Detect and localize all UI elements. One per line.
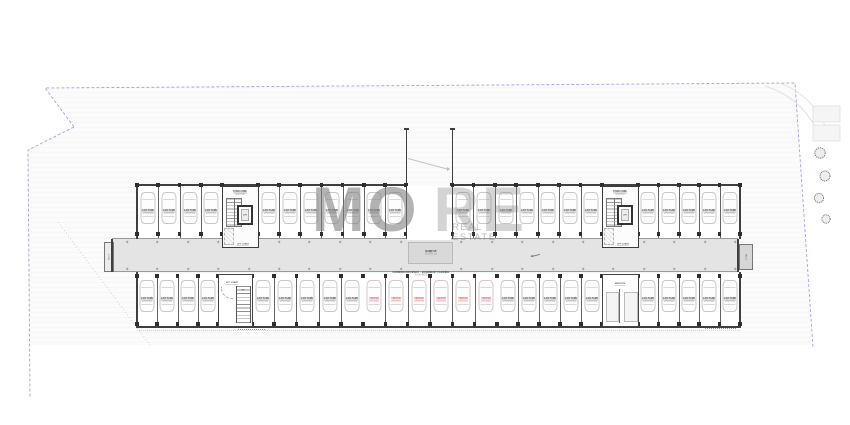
stall-label-dim: 2.5 X 5.0 bbox=[642, 212, 654, 215]
car-windshield-line bbox=[326, 199, 337, 200]
parking-stall: CAR PARK2.5 X 5.0 bbox=[638, 186, 659, 238]
car-glyph bbox=[200, 280, 215, 312]
car-glyph bbox=[641, 280, 656, 312]
parking-stall: CAR PARK2.5 X 5.0 bbox=[198, 275, 218, 326]
parking-stall: CAR PARK2.5 X 5.0 bbox=[495, 186, 517, 238]
column-block bbox=[362, 183, 366, 187]
parking-stall: CAR PARK2.5 X 5.0 bbox=[343, 186, 365, 238]
car-windshield-line bbox=[643, 287, 654, 288]
car-glyph bbox=[161, 192, 176, 224]
car-rear-line bbox=[162, 304, 173, 305]
car-glyph bbox=[702, 280, 717, 312]
car-rear-line bbox=[523, 304, 534, 305]
car-glyph bbox=[477, 192, 492, 224]
column-block bbox=[677, 183, 681, 187]
lift-label: LIFT bbox=[623, 213, 627, 215]
stall-label: CAR PARK2.5 X 5.0 bbox=[724, 209, 736, 215]
stair-center-line bbox=[614, 199, 615, 226]
stall-label-dim: 2.5 X 5.0 bbox=[457, 212, 469, 215]
car-rear-line bbox=[302, 304, 313, 305]
lift-lobby-label: LIFT LOBBY bbox=[226, 282, 238, 285]
car-glyph bbox=[542, 280, 557, 312]
column-block bbox=[514, 232, 518, 236]
stall-label: CAR PARK2.5 X 5.0 bbox=[457, 209, 469, 215]
car-rear-line bbox=[305, 216, 316, 217]
stall-label: CAR PARK2.5 X 5.0 bbox=[564, 297, 576, 303]
car-rear-line bbox=[683, 216, 694, 217]
car-glyph bbox=[681, 192, 696, 224]
column-block bbox=[493, 232, 497, 236]
car-glyph bbox=[498, 192, 513, 224]
car-windshield-line bbox=[521, 199, 532, 200]
car-windshield-line bbox=[565, 287, 576, 288]
column-block bbox=[384, 322, 388, 326]
car-windshield-line bbox=[643, 199, 654, 200]
stair-core-label: STAIR CORE3.4 X 5.6 bbox=[613, 190, 627, 195]
car-windshield-line bbox=[202, 287, 213, 288]
stall-label: CAR PARK2.5 X 5.0 bbox=[522, 297, 534, 303]
car-rear-line bbox=[182, 304, 193, 305]
dimension-annotation bbox=[238, 329, 265, 330]
car-rear-line bbox=[479, 216, 490, 217]
car-rear-line bbox=[348, 216, 359, 217]
column-block bbox=[406, 322, 410, 326]
column-block bbox=[451, 274, 455, 278]
column-block bbox=[135, 183, 139, 187]
stall-label: CAR PARK2.5 X 5.0 bbox=[305, 209, 317, 215]
column-block bbox=[495, 274, 499, 278]
column-block bbox=[697, 232, 701, 236]
car-rear-line bbox=[263, 216, 274, 217]
stall-label-dim: 2.5 X 5.0 bbox=[501, 300, 513, 303]
car-rear-line bbox=[500, 216, 511, 217]
car-windshield-line bbox=[391, 287, 402, 288]
lobby-hatch bbox=[224, 228, 235, 245]
car-windshield-line bbox=[500, 199, 511, 200]
car-glyph bbox=[367, 192, 382, 224]
column-block bbox=[657, 322, 661, 326]
car-rear-line bbox=[413, 304, 424, 305]
car-glyph bbox=[722, 280, 737, 312]
car-glyph bbox=[562, 192, 577, 224]
stall-label-dim: 2.5 X 5.0 bbox=[346, 300, 358, 303]
car-windshield-line bbox=[142, 287, 153, 288]
column-block bbox=[155, 322, 159, 326]
car-rear-line bbox=[724, 216, 735, 217]
stall-label: CAR PARK2.5 X 5.0 bbox=[389, 209, 401, 215]
stall-label-dim: 2.5 X 5.0 bbox=[662, 212, 674, 215]
stall-label-dim: 2.5 X 5.0 bbox=[347, 212, 359, 215]
stall-label: CAR PARK2.5 X 5.0 bbox=[257, 297, 269, 303]
column-block bbox=[295, 322, 299, 326]
car-windshield-line bbox=[502, 287, 513, 288]
column-block bbox=[135, 274, 139, 278]
car-windshield-line bbox=[683, 199, 694, 200]
car-rear-line bbox=[436, 304, 447, 305]
stall-label: CAR PARK2.5 X 5.0 bbox=[499, 209, 511, 215]
column-block bbox=[384, 274, 388, 278]
floorplan-canvas: DUCTDUCTCAR PARK2.5 X 5.0CAR PARK2.5 X 5… bbox=[0, 0, 850, 425]
parking-stall: CAR PARK2.5 X 5.0 bbox=[157, 275, 178, 326]
column-block bbox=[196, 322, 200, 326]
stall-label-dim: 2.5 X 5.0 bbox=[662, 300, 674, 303]
column-block bbox=[383, 232, 387, 236]
parking-stall: CAR PARK2.5 X 5.0 bbox=[319, 275, 342, 326]
parking-stall: CAR PARK2.5 X 5.0 bbox=[699, 186, 720, 238]
stall-label: CAR PARK2.5 X 5.0 bbox=[521, 209, 533, 215]
column-block bbox=[155, 274, 159, 278]
stall-label: CAR PARK2.5 X 5.0 bbox=[543, 297, 555, 303]
stall-label: VISITOR2.5 X 5.0 bbox=[436, 297, 446, 303]
car-rear-line bbox=[202, 304, 213, 305]
slope-arrow-head-icon bbox=[530, 255, 533, 257]
parking-stall: CAR PARK2.5 X 5.0 bbox=[581, 186, 602, 238]
column-block bbox=[718, 274, 722, 278]
column-block bbox=[196, 274, 200, 278]
stall-label-dim: 2.5 X 5.0 bbox=[481, 300, 491, 303]
car-glyph bbox=[256, 280, 271, 312]
parking-stall: CAR PARK2.5 X 5.0 bbox=[137, 186, 159, 238]
door-swing-icon bbox=[221, 287, 233, 299]
column-block bbox=[677, 322, 681, 326]
column-block bbox=[657, 183, 661, 187]
lift-shaft: LIFT bbox=[617, 205, 633, 225]
car-glyph bbox=[563, 280, 578, 312]
car-windshield-line bbox=[564, 199, 575, 200]
stall-label-dim: 2.5 X 5.0 bbox=[279, 300, 291, 303]
parking-stall: CAR PARK2.5 X 5.0 bbox=[180, 186, 202, 238]
service-bay bbox=[606, 292, 619, 322]
stall-label: CAR PARK2.5 X 5.0 bbox=[703, 209, 715, 215]
stair-down-label: DN bbox=[242, 289, 245, 291]
column-block bbox=[362, 232, 366, 236]
car-windshield-line bbox=[390, 199, 401, 200]
column-block bbox=[514, 183, 518, 187]
stair-core-label: STAIR CORE3.4 X 5.6 bbox=[233, 190, 247, 195]
stall-label-dim: 2.5 X 5.0 bbox=[478, 212, 490, 215]
column-block bbox=[738, 232, 742, 236]
car-windshield-line bbox=[436, 287, 447, 288]
parking-stall: CAR PARK2.5 X 5.0 bbox=[296, 275, 319, 326]
car-glyph bbox=[303, 192, 318, 224]
corridor-column-marker bbox=[551, 240, 554, 243]
parking-building-plan: DUCTDUCTCAR PARK2.5 X 5.0CAR PARK2.5 X 5… bbox=[0, 0, 850, 425]
car-glyph bbox=[584, 192, 599, 224]
corridor-column-marker bbox=[399, 240, 402, 243]
column-block bbox=[536, 232, 540, 236]
car-glyph bbox=[456, 280, 471, 312]
stall-label: CAR PARK2.5 X 5.0 bbox=[501, 297, 513, 303]
stall-label-dim: 2.5 X 5.0 bbox=[683, 212, 695, 215]
stair-center-line bbox=[234, 199, 235, 226]
car-glyph bbox=[344, 280, 359, 312]
column-block bbox=[579, 322, 583, 326]
service-core-lower-right: SERVICES bbox=[602, 274, 639, 327]
car-glyph bbox=[180, 280, 195, 312]
stair-down-flight: DN bbox=[236, 286, 251, 323]
parking-stall: CAR PARK2.5 X 5.0 bbox=[581, 275, 602, 326]
column-block bbox=[738, 183, 742, 187]
column-block bbox=[579, 183, 583, 187]
car-rear-line bbox=[724, 304, 735, 305]
parking-stall: CAR PARK2.5 X 5.0 bbox=[679, 186, 700, 238]
car-rear-line bbox=[564, 216, 575, 217]
car-glyph bbox=[722, 192, 737, 224]
column-block bbox=[558, 322, 562, 326]
stall-label-dim: 2.5 X 5.0 bbox=[436, 300, 446, 303]
column-block bbox=[341, 232, 345, 236]
stall-label: CAR PARK2.5 X 5.0 bbox=[326, 209, 338, 215]
stall-label: VISITOR2.5 X 5.0 bbox=[414, 297, 424, 303]
car-rear-line bbox=[163, 216, 174, 217]
car-rear-line bbox=[458, 304, 469, 305]
stall-label: VISITOR2.5 X 5.0 bbox=[481, 297, 491, 303]
car-rear-line bbox=[643, 216, 654, 217]
column-block bbox=[277, 232, 281, 236]
column-block bbox=[320, 183, 324, 187]
column-block bbox=[516, 274, 520, 278]
stall-label: CAR PARK2.5 X 5.0 bbox=[184, 209, 196, 215]
visitor-stall: VISITOR2.5 X 5.0 bbox=[408, 275, 431, 326]
stall-label-dim: 2.5 X 5.0 bbox=[414, 300, 424, 303]
parking-stall: CAR PARK2.5 X 5.0 bbox=[321, 186, 343, 238]
car-windshield-line bbox=[369, 199, 380, 200]
car-rear-line bbox=[280, 304, 291, 305]
stall-label-dim: 2.5 X 5.0 bbox=[202, 300, 214, 303]
car-glyph bbox=[282, 192, 297, 224]
column-block bbox=[176, 274, 180, 278]
parking-stall: CAR PARK2.5 X 5.0 bbox=[539, 275, 561, 326]
column-block bbox=[199, 183, 203, 187]
car-glyph bbox=[641, 192, 656, 224]
parking-stall: CAR PARK2.5 X 5.0 bbox=[178, 275, 199, 326]
car-glyph bbox=[388, 192, 403, 224]
parking-stall: CAR PARK2.5 X 5.0 bbox=[518, 275, 540, 326]
car-windshield-line bbox=[324, 287, 335, 288]
car-glyph bbox=[140, 192, 155, 224]
stall-label-dim: 2.5 X 5.0 bbox=[262, 212, 274, 215]
parking-stall: CAR PARK2.5 X 5.0 bbox=[137, 275, 158, 326]
column-block bbox=[156, 183, 160, 187]
car-rear-line bbox=[586, 216, 597, 217]
column-block bbox=[298, 183, 302, 187]
car-glyph bbox=[521, 280, 536, 312]
car-rear-line bbox=[369, 216, 380, 217]
parking-stall: CAR PARK2.5 X 5.0 bbox=[300, 186, 322, 238]
car-windshield-line bbox=[284, 199, 295, 200]
parking-stall: CAR PARK2.5 X 5.0 bbox=[559, 186, 581, 238]
lift-lobby-label: LIFT LOBBY bbox=[617, 243, 629, 246]
car-glyph bbox=[519, 192, 534, 224]
stall-label: CAR PARK2.5 X 5.0 bbox=[202, 297, 214, 303]
column-block bbox=[677, 232, 681, 236]
car-glyph bbox=[661, 192, 676, 224]
visitor-stall: VISITOR2.5 X 5.0 bbox=[430, 275, 453, 326]
column-block bbox=[472, 183, 476, 187]
stall-label: CAR PARK2.5 X 5.0 bbox=[161, 297, 173, 303]
stall-label-dim: 2.5 X 5.0 bbox=[305, 212, 317, 215]
stall-label-dim: 2.5 X 5.0 bbox=[301, 300, 313, 303]
parking-stall: CAR PARK2.5 X 5.0 bbox=[158, 186, 180, 238]
stall-label-dim: 2.5 X 5.0 bbox=[585, 300, 597, 303]
column-block bbox=[199, 232, 203, 236]
car-rear-line bbox=[586, 304, 597, 305]
stall-label-dim: 2.5 X 5.0 bbox=[683, 300, 695, 303]
column-block bbox=[493, 183, 497, 187]
parking-stall: CAR PARK2.5 X 5.0 bbox=[452, 186, 474, 238]
column-block bbox=[579, 274, 583, 278]
stall-label-dim: 2.5 X 5.0 bbox=[161, 300, 173, 303]
car-rear-line bbox=[683, 304, 694, 305]
stall-label: CAR PARK2.5 X 5.0 bbox=[284, 209, 296, 215]
car-windshield-line bbox=[348, 199, 359, 200]
stall-label-dim: 2.5 X 5.0 bbox=[369, 300, 379, 303]
column-block bbox=[178, 183, 182, 187]
parking-stall: CAR PARK2.5 X 5.0 bbox=[538, 186, 560, 238]
column-block bbox=[738, 274, 742, 278]
car-windshield-line bbox=[523, 287, 534, 288]
car-windshield-line bbox=[480, 287, 491, 288]
stall-label-dim: 2.5 X 5.0 bbox=[205, 212, 217, 215]
parking-stall: CAR PARK2.5 X 5.0 bbox=[516, 186, 538, 238]
stall-label: CAR PARK2.5 X 5.0 bbox=[564, 209, 576, 215]
stall-label-dim: 2.5 X 5.0 bbox=[564, 300, 576, 303]
parking-stall: CAR PARK2.5 X 5.0 bbox=[258, 186, 280, 238]
car-windshield-line bbox=[663, 199, 674, 200]
stall-label-dim: 2.5 X 5.0 bbox=[141, 300, 153, 303]
car-glyph bbox=[661, 280, 676, 312]
stall-label: CAR PARK2.5 X 5.0 bbox=[585, 297, 597, 303]
column-block bbox=[557, 232, 561, 236]
stall-label-dim: 2.5 X 5.0 bbox=[326, 212, 338, 215]
car-rear-line bbox=[704, 304, 715, 305]
stall-label: CAR PARK2.5 X 5.0 bbox=[346, 297, 358, 303]
column-block bbox=[428, 322, 432, 326]
stall-label-dim: 2.5 X 5.0 bbox=[642, 300, 654, 303]
parking-stall: CAR PARK2.5 X 5.0 bbox=[274, 275, 297, 326]
stall-label-dim: 2.5 X 5.0 bbox=[564, 212, 576, 215]
car-windshield-line bbox=[457, 199, 468, 200]
parking-stall: CAR PARK2.5 X 5.0 bbox=[720, 275, 740, 326]
lift-lobby-label: LIFT LOBBY bbox=[237, 243, 249, 246]
column-block bbox=[536, 183, 540, 187]
car-windshield-line bbox=[586, 287, 597, 288]
car-rear-line bbox=[185, 216, 196, 217]
column-block bbox=[657, 232, 661, 236]
car-glyph bbox=[322, 280, 337, 312]
car-rear-line bbox=[369, 304, 380, 305]
corridor-column-marker bbox=[703, 267, 706, 270]
stall-label-dim: 2.5 X 5.0 bbox=[543, 300, 555, 303]
car-rear-line bbox=[502, 304, 513, 305]
car-glyph bbox=[584, 280, 599, 312]
parking-stall: CAR PARK2.5 X 5.0 bbox=[560, 275, 582, 326]
car-windshield-line bbox=[263, 199, 274, 200]
car-glyph bbox=[300, 280, 315, 312]
car-windshield-line bbox=[185, 199, 196, 200]
car-windshield-line bbox=[543, 199, 554, 200]
car-windshield-line bbox=[704, 287, 715, 288]
car-windshield-line bbox=[258, 287, 269, 288]
lobby-hatch bbox=[604, 228, 615, 245]
stall-label-dim: 2.5 X 5.0 bbox=[521, 212, 533, 215]
column-block bbox=[697, 183, 701, 187]
column-block bbox=[495, 322, 499, 326]
stall-label-dim: 2.5 X 5.0 bbox=[181, 300, 193, 303]
column-block bbox=[738, 322, 742, 326]
stair-core: STAIR CORE3.4 X 5.6LIFTLIFT LOBBY bbox=[602, 186, 639, 249]
stall-label-dim: 2.5 X 5.0 bbox=[368, 212, 380, 215]
car-rear-line bbox=[391, 304, 402, 305]
column-block bbox=[317, 322, 321, 326]
parking-stall: CAR PARK2.5 X 5.0 bbox=[699, 275, 720, 326]
stall-label-dim: 2.5 X 5.0 bbox=[257, 300, 269, 303]
stall-label: CAR PARK2.5 X 5.0 bbox=[141, 297, 153, 303]
column-block bbox=[361, 274, 365, 278]
column-block bbox=[298, 232, 302, 236]
car-windshield-line bbox=[142, 199, 153, 200]
stall-label: VISITOR2.5 X 5.0 bbox=[392, 297, 402, 303]
column-block bbox=[383, 183, 387, 187]
car-glyph bbox=[681, 280, 696, 312]
corridor-column-marker bbox=[703, 240, 706, 243]
car-rear-line bbox=[643, 304, 654, 305]
parking-stall: CAR PARK2.5 X 5.0 bbox=[658, 186, 679, 238]
stall-label-dim: 2.5 X 5.0 bbox=[522, 300, 534, 303]
stall-label: CAR PARK2.5 X 5.0 bbox=[368, 209, 380, 215]
car-windshield-line bbox=[413, 287, 424, 288]
ramp-arrow-icon bbox=[447, 167, 450, 171]
parking-stall: CAR PARK2.5 X 5.0 bbox=[252, 275, 275, 326]
column-block bbox=[537, 322, 541, 326]
stall-label: VISITOR2.5 X 5.0 bbox=[459, 297, 469, 303]
column-block bbox=[451, 322, 455, 326]
car-rear-line bbox=[142, 216, 153, 217]
parking-stall: CAR PARK2.5 X 5.0 bbox=[658, 275, 679, 326]
column-block bbox=[697, 322, 701, 326]
parking-stall: CAR PARK2.5 X 5.0 bbox=[473, 186, 495, 238]
parking-stall: CAR PARK2.5 X 5.0 bbox=[201, 186, 222, 238]
car-windshield-line bbox=[346, 287, 357, 288]
car-windshield-line bbox=[182, 287, 193, 288]
column-block bbox=[178, 232, 182, 236]
column-block bbox=[718, 322, 722, 326]
stall-label-dim: 2.5 X 5.0 bbox=[141, 212, 153, 215]
dimension-annotation bbox=[705, 328, 736, 329]
column-block bbox=[558, 274, 562, 278]
stall-label-dim: 2.5 X 5.0 bbox=[323, 300, 335, 303]
visitor-stall: VISITOR2.5 X 5.0 bbox=[363, 275, 386, 326]
car-windshield-line bbox=[369, 287, 380, 288]
visitor-stall: VISITOR2.5 X 5.0 bbox=[452, 275, 475, 326]
car-rear-line bbox=[324, 304, 335, 305]
column-block bbox=[135, 232, 139, 236]
car-rear-line bbox=[565, 304, 576, 305]
column-block bbox=[579, 232, 583, 236]
car-rear-line bbox=[326, 216, 337, 217]
car-glyph bbox=[455, 192, 470, 224]
stall-label: CAR PARK2.5 X 5.0 bbox=[683, 209, 695, 215]
car-rear-line bbox=[258, 304, 269, 305]
parking-stall: CAR PARK2.5 X 5.0 bbox=[638, 275, 659, 326]
stall-label-dim: 2.5 X 5.0 bbox=[724, 300, 736, 303]
visitor-stall: VISITOR2.5 X 5.0 bbox=[385, 275, 408, 326]
stall-label-dim: 2.5 X 5.0 bbox=[184, 212, 196, 215]
car-windshield-line bbox=[163, 199, 174, 200]
stall-label: CAR PARK2.5 X 5.0 bbox=[478, 209, 490, 215]
car-glyph bbox=[478, 280, 493, 312]
car-windshield-line bbox=[280, 287, 291, 288]
